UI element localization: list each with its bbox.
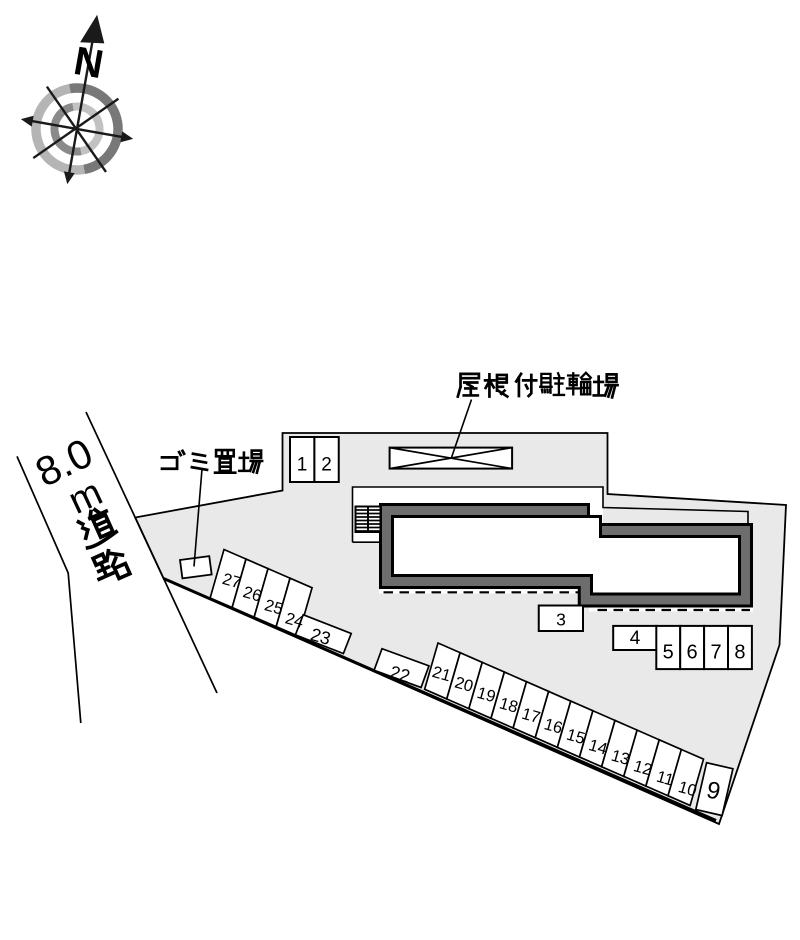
svg-text:3: 3 (556, 610, 566, 630)
svg-text:8: 8 (734, 642, 745, 664)
svg-text:2: 2 (321, 454, 332, 475)
svg-text:6: 6 (687, 642, 698, 664)
svg-text:7: 7 (710, 642, 721, 664)
svg-text:1: 1 (297, 454, 308, 475)
svg-text:4: 4 (630, 628, 641, 649)
svg-text:5: 5 (663, 642, 674, 664)
